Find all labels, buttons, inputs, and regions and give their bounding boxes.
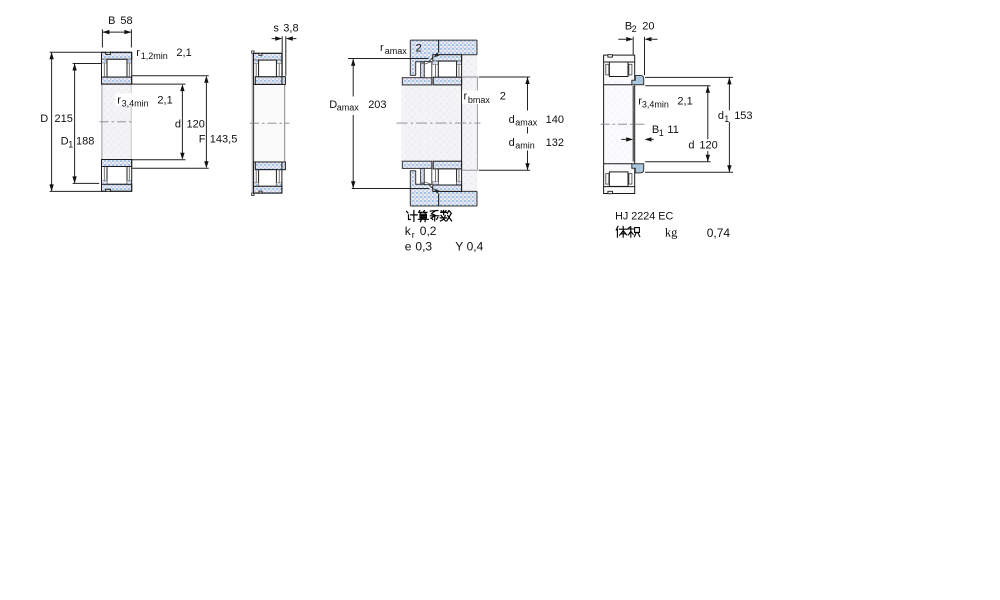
svg-text:140: 140: [546, 114, 564, 126]
svg-text:r: r: [136, 47, 140, 59]
svg-text:2: 2: [416, 43, 422, 55]
svg-text:d: d: [509, 114, 515, 126]
svg-text:d: d: [175, 119, 181, 131]
svg-text:1: 1: [659, 128, 664, 138]
svg-text:kg: kg: [665, 226, 678, 240]
svg-text:amax: amax: [385, 46, 408, 56]
svg-text:1: 1: [724, 114, 729, 124]
svg-text:0,4: 0,4: [467, 239, 484, 253]
svg-text:bmax: bmax: [468, 95, 491, 105]
svg-text:amin: amin: [515, 141, 535, 151]
svg-text:amax: amax: [337, 103, 360, 113]
svg-text:0,74: 0,74: [707, 226, 731, 240]
svg-text:153: 153: [734, 110, 752, 122]
svg-text:3,4min: 3,4min: [122, 98, 149, 108]
svg-text:d: d: [688, 140, 694, 152]
svg-text:HJ 2224 EC: HJ 2224 EC: [615, 211, 673, 223]
svg-text:r: r: [380, 42, 384, 54]
svg-text:D: D: [40, 113, 48, 125]
svg-text:amax: amax: [515, 118, 538, 128]
svg-text:d: d: [509, 137, 515, 149]
svg-text:F: F: [199, 133, 206, 145]
svg-text:132: 132: [546, 137, 564, 149]
svg-text:r: r: [464, 90, 468, 102]
svg-text:215: 215: [55, 113, 73, 125]
svg-text:120: 120: [187, 119, 205, 131]
svg-text:0,3: 0,3: [415, 239, 432, 253]
svg-text:2,1: 2,1: [677, 95, 692, 107]
svg-text:0,2: 0,2: [420, 224, 437, 238]
svg-text:r: r: [412, 230, 415, 240]
svg-text:1: 1: [68, 139, 73, 149]
svg-text:2: 2: [632, 24, 637, 34]
svg-text:s: s: [273, 22, 279, 34]
svg-text:3,4min: 3,4min: [642, 99, 669, 109]
svg-text:203: 203: [368, 99, 386, 111]
svg-text:e: e: [405, 239, 412, 253]
svg-text:20: 20: [642, 20, 654, 32]
svg-text:58: 58: [120, 15, 132, 27]
svg-text:143,5: 143,5: [210, 133, 238, 145]
svg-text:188: 188: [76, 135, 94, 147]
svg-text:120: 120: [699, 140, 717, 152]
svg-text:Y: Y: [455, 239, 463, 253]
svg-text:d: d: [718, 110, 724, 122]
svg-text:3,8: 3,8: [283, 22, 298, 34]
svg-text:2: 2: [500, 90, 506, 102]
svg-text:11: 11: [667, 124, 678, 136]
svg-text:1,2min: 1,2min: [141, 51, 168, 61]
svg-text:B: B: [108, 15, 115, 27]
svg-text:2,1: 2,1: [157, 94, 172, 106]
svg-text:2,1: 2,1: [176, 47, 191, 59]
